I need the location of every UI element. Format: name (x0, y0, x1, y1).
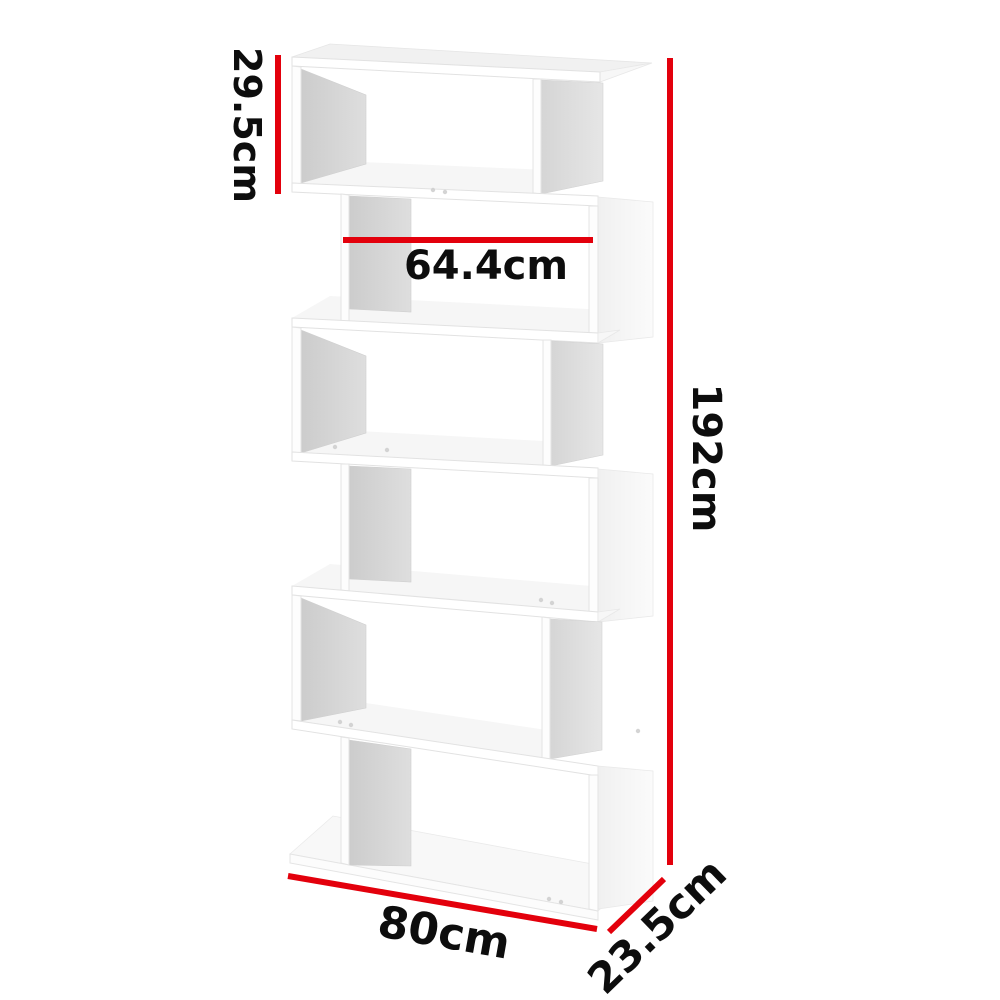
tier-3-divider-side-face (551, 341, 603, 466)
tier-6 (290, 737, 653, 920)
screw-dot (385, 448, 389, 452)
screw-dot (333, 445, 337, 449)
tier-4-divider-front (341, 464, 349, 591)
screw-dot (550, 601, 554, 605)
tier-2-divider-side-face (349, 196, 411, 312)
screw-dot (636, 729, 640, 733)
tier-3-left-panel-front (292, 327, 301, 453)
top-board (292, 44, 652, 82)
tier-2-right-panel-side-face (598, 197, 653, 343)
dimension-label-inner-width: 64.4cm (404, 243, 568, 289)
screw-dot (338, 720, 342, 724)
tier-4-right-panel-front (589, 478, 598, 622)
tier-1-left-panel-front (292, 66, 301, 184)
tier-5-divider-front (542, 617, 550, 759)
tier-4-right-panel-side-face (598, 469, 653, 622)
dimension-label-tier-height: 29.5cm (225, 47, 269, 203)
tier-1-divider-side-face (541, 80, 603, 194)
screw-dot (349, 723, 353, 727)
screw-dot (547, 897, 551, 901)
tier-6-right-panel-side-face (598, 766, 653, 909)
tier-2-right-panel-front (589, 206, 598, 343)
tier-3 (292, 327, 603, 466)
tier-1-divider-front (533, 79, 541, 194)
tier-3-divider-front (543, 340, 551, 466)
tier-5-left-panel-front (292, 595, 301, 721)
tier-4-divider-side-face (349, 466, 411, 582)
bookshelf (290, 44, 653, 920)
tier-2-divider-front (341, 194, 349, 321)
tier-5-left-panel-inner-face (301, 598, 366, 721)
tier-5-divider-side-face (550, 619, 602, 759)
tier-6-right-panel-front (589, 775, 598, 911)
tier-3-left-panel-inner-face (301, 330, 366, 453)
dimension-label-overall-height: 192cm (683, 384, 729, 533)
tier-1 (292, 66, 603, 194)
bookshelf-dimension-diagram: 29.5cm 64.4cm 192cm 80cm 23.5cm (0, 0, 1000, 1000)
screw-dot (443, 190, 447, 194)
screw-dot (559, 900, 563, 904)
screw-dot (431, 188, 435, 192)
screw-dot (539, 598, 543, 602)
tier-1-left-panel-inner-face (301, 69, 366, 183)
dimension-label-overall-width: 80cm (374, 896, 514, 969)
tier-6-divider-side-face (349, 740, 411, 866)
tier-6-divider-front (341, 737, 349, 865)
